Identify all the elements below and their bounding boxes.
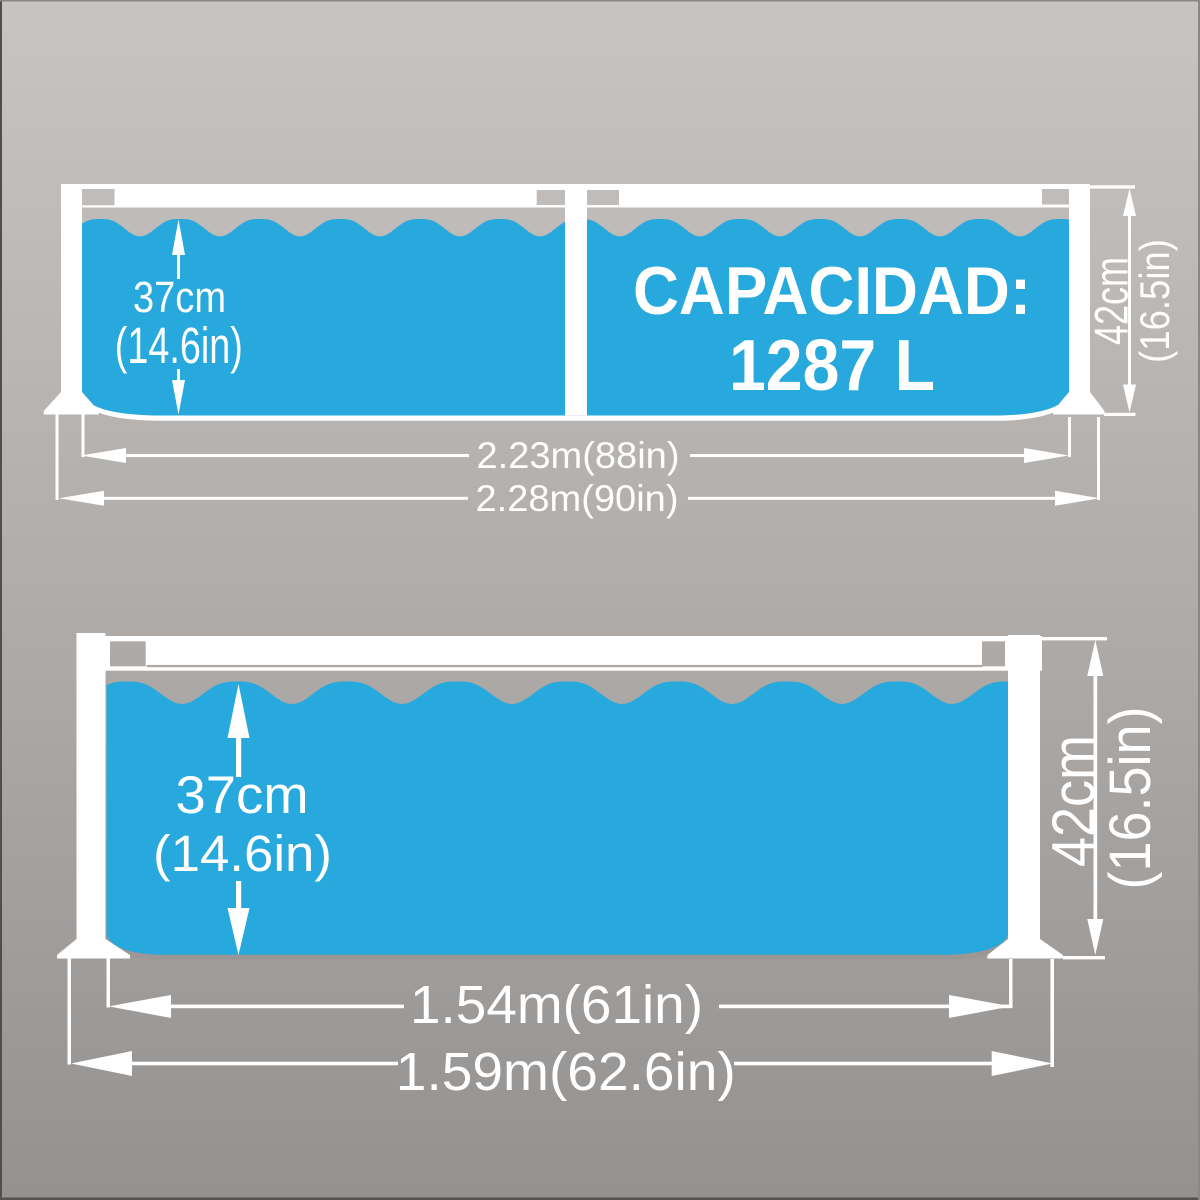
svg-text:CAPACIDAD:: CAPACIDAD: (633, 253, 1031, 329)
svg-text:37cm: 37cm (133, 273, 226, 322)
svg-text:37cm: 37cm (176, 766, 309, 825)
svg-text:(14.6in): (14.6in) (115, 317, 243, 374)
svg-text:42cm: 42cm (1085, 257, 1138, 345)
svg-text:(14.6in): (14.6in) (153, 825, 332, 882)
svg-text:1287 L: 1287 L (729, 326, 935, 406)
svg-text:1.59m(62.6in): 1.59m(62.6in) (396, 1042, 736, 1102)
svg-text:1.54m(61in): 1.54m(61in) (410, 975, 703, 1035)
svg-text:(16.5in): (16.5in) (1097, 706, 1162, 889)
svg-text:2.28m(90in): 2.28m(90in) (476, 478, 679, 519)
svg-text:(16.5in): (16.5in) (1132, 239, 1179, 363)
svg-text:2.23m(88in): 2.23m(88in) (477, 435, 680, 476)
